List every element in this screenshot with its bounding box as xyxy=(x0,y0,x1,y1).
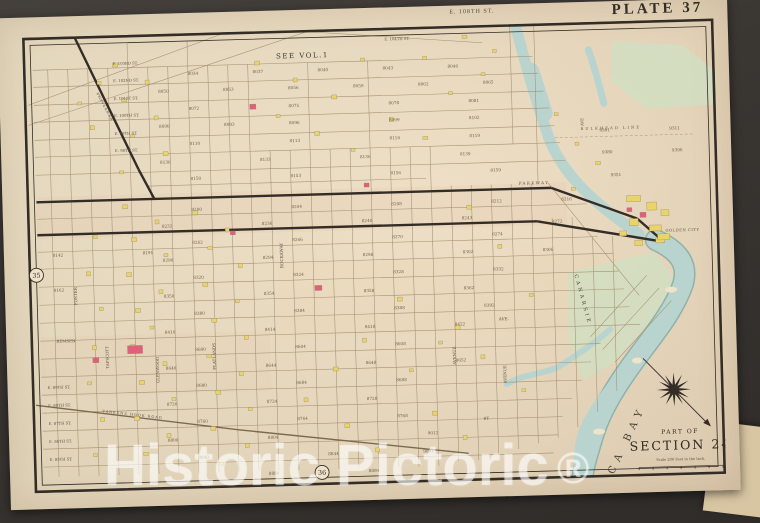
compass-rose-icon xyxy=(643,357,711,429)
street-label: E. 85TH ST. xyxy=(50,456,73,462)
building-marker xyxy=(492,49,496,52)
building-marker xyxy=(658,234,670,240)
building-marker xyxy=(635,240,643,245)
building-marker xyxy=(629,218,638,225)
building-marker xyxy=(575,142,579,145)
adjacent-plate-number: 35 xyxy=(32,271,41,279)
street-label: E. 89TH ST. xyxy=(48,384,71,390)
street-label: Scale 200 Feet to the Inch. xyxy=(656,457,705,462)
block-number: 8102 xyxy=(469,115,480,120)
block-number: 8350 xyxy=(164,293,175,298)
block-number: 8191 xyxy=(142,250,153,255)
building-marker xyxy=(90,126,94,130)
building-marker xyxy=(554,113,558,116)
building-marker xyxy=(164,254,168,257)
block-number: 8034 xyxy=(187,71,198,76)
block-number: 8232 xyxy=(162,223,173,228)
street-label: FOSTER xyxy=(73,286,79,305)
building-marker xyxy=(596,161,601,164)
building-marker xyxy=(239,372,243,376)
street-label: GLENWOOD xyxy=(155,357,161,383)
building-marker xyxy=(235,300,239,303)
street-label: SEE VOL.1 xyxy=(276,51,329,60)
block-number: 8043 xyxy=(382,65,393,70)
building-marker xyxy=(522,389,526,392)
building-marker xyxy=(230,231,235,235)
block-number: 8150 xyxy=(190,176,201,181)
street-line xyxy=(146,178,426,186)
street-line xyxy=(35,143,560,158)
building-marker xyxy=(432,411,437,415)
block-number: 8768 xyxy=(397,413,408,418)
building-marker xyxy=(640,212,646,217)
block-number: 8332 xyxy=(493,266,504,271)
block-number: 8652 xyxy=(456,357,467,362)
block-number: 8133 xyxy=(260,157,271,162)
building-marker xyxy=(163,152,168,156)
block-number: 8130 xyxy=(160,159,171,164)
building-marker xyxy=(143,452,148,455)
block-number: 8096 xyxy=(289,120,300,125)
street-label: E. 99TH ST. xyxy=(114,130,137,136)
building-marker xyxy=(463,435,467,439)
block-number: 8037 xyxy=(252,69,263,74)
block-number: 8418 xyxy=(365,324,376,329)
block-number: 8081 xyxy=(468,98,479,103)
block-number: 9311 xyxy=(669,125,680,130)
block-number: 8680 xyxy=(196,383,207,388)
block-number: 8093 xyxy=(224,122,235,127)
street-label: AVENUE xyxy=(452,346,458,366)
building-marker xyxy=(203,283,208,287)
waterway xyxy=(588,49,604,103)
block-number: 8212 xyxy=(491,198,502,203)
atlas-map: SEE VOL.1E. 104TH ST.E. 103RD ST.E. 102N… xyxy=(22,18,726,493)
building-marker xyxy=(529,293,533,296)
street-line xyxy=(26,32,309,126)
block-number: 8065 xyxy=(483,79,494,84)
street-label: B'KLYN & R.B. R.R. xyxy=(96,92,114,122)
building-marker xyxy=(216,390,221,394)
block-number: 8320 xyxy=(193,275,204,280)
block-number: 8116 xyxy=(389,135,400,140)
building-marker xyxy=(123,205,128,209)
block-number: 8354 xyxy=(264,291,275,296)
block-number: 9091 xyxy=(423,448,434,453)
block-number: 8306 xyxy=(543,247,554,252)
margin-street-label: E. 108TH ST. xyxy=(449,8,494,15)
plate-title: PLATE 37 xyxy=(563,0,703,20)
block-number: 8358 xyxy=(364,288,375,293)
building-marker xyxy=(100,417,104,421)
block-number: 8362 xyxy=(464,285,475,290)
block-number: 8764 xyxy=(297,416,308,421)
building-marker xyxy=(159,290,163,294)
block-number: 8200 xyxy=(191,207,202,212)
building-marker xyxy=(364,183,369,187)
marsh-area xyxy=(610,38,720,109)
street-line xyxy=(127,43,139,475)
block-number: 8053 xyxy=(223,87,234,92)
block-number: 8410 xyxy=(165,329,176,334)
block-number: 8688 xyxy=(396,377,407,382)
building-marker xyxy=(481,73,485,76)
building-marker xyxy=(481,355,485,359)
road-line xyxy=(238,423,469,459)
compass-needle xyxy=(643,357,706,424)
building-marker xyxy=(139,380,144,384)
building-marker xyxy=(626,195,640,201)
block-number: 8302 xyxy=(463,249,474,254)
street-label: E. 98TH ST. xyxy=(115,147,138,153)
block-number: 8884 xyxy=(369,468,380,473)
building-marker xyxy=(345,424,350,428)
block-number: 8414 xyxy=(265,327,276,332)
building-marker xyxy=(351,148,355,151)
street-label: ST. xyxy=(484,416,490,421)
block-number: 8608 xyxy=(395,341,406,346)
building-marker xyxy=(86,272,90,276)
block-number: 8604 xyxy=(295,344,306,349)
street-label: E. 88TH ST. xyxy=(48,402,71,408)
block-number: 8216 xyxy=(561,196,572,201)
street-line xyxy=(148,67,159,474)
block-number: 8648 xyxy=(366,360,377,365)
block-number: 8274 xyxy=(492,231,503,236)
street-label: E. 86TH ST. xyxy=(49,438,72,444)
building-marker xyxy=(647,202,657,210)
block-number: 8728 xyxy=(367,396,378,401)
block-number: 9390 xyxy=(672,147,683,152)
block-number: 9301 xyxy=(599,127,610,132)
street-label: FLATLANDS xyxy=(211,343,217,370)
building-marker xyxy=(362,338,366,342)
building-marker xyxy=(467,205,472,209)
block-number: 8840 xyxy=(198,455,209,460)
block-number: 8392 xyxy=(484,302,495,307)
street-label: AVENUE xyxy=(502,365,508,385)
block-number: 8040 xyxy=(317,67,328,72)
building-marker xyxy=(135,308,140,312)
building-marker xyxy=(245,443,249,447)
building-marker xyxy=(248,407,252,410)
building-marker xyxy=(78,102,82,105)
building-marker xyxy=(225,228,229,232)
building-marker xyxy=(409,369,413,372)
building-marker xyxy=(462,35,467,38)
building-marker xyxy=(154,116,158,120)
building-marker xyxy=(97,81,101,84)
building-marker xyxy=(627,208,632,212)
block-number: 8880 xyxy=(269,471,280,476)
building-marker xyxy=(571,187,575,190)
street-label: E. 104TH ST. xyxy=(384,36,409,42)
building-marker xyxy=(244,335,248,339)
block-tint xyxy=(36,182,567,239)
block-number: 8078 xyxy=(388,100,399,105)
building-marker xyxy=(127,345,142,353)
block-number: 8388 xyxy=(394,305,405,310)
block-number: 8062 xyxy=(418,81,429,86)
building-marker xyxy=(619,231,626,236)
street-line xyxy=(68,69,79,476)
block-number: 8422 xyxy=(455,321,466,326)
building-marker xyxy=(661,210,669,216)
street-label: BULKHEAD LINE xyxy=(581,124,642,131)
building-marker xyxy=(333,367,338,371)
building-marker xyxy=(238,264,242,268)
block-number: 8294 xyxy=(263,255,274,260)
building-marker xyxy=(93,236,97,239)
block-number: 9380 xyxy=(602,149,613,154)
building-marker xyxy=(93,358,99,363)
building-marker xyxy=(315,285,322,290)
block-number: 9012 xyxy=(428,430,439,435)
block-number: 8266 xyxy=(292,237,303,242)
block-number: 8328 xyxy=(393,269,404,274)
building-marker xyxy=(276,114,280,117)
block-number: 8046 xyxy=(447,63,458,68)
street-label: E. 102ND ST. xyxy=(113,77,139,83)
block-number: 9272 xyxy=(552,219,563,224)
block-number: 8324 xyxy=(293,272,304,277)
building-marker xyxy=(99,307,103,310)
block-number: 8380 xyxy=(194,311,205,316)
street-line xyxy=(48,70,59,477)
block-number: 8159 xyxy=(490,167,501,172)
building-marker xyxy=(332,95,337,99)
block-number: 8724 xyxy=(267,399,278,404)
street-line xyxy=(555,134,693,138)
street-label: ROCKAWAY xyxy=(279,242,285,268)
building-marker xyxy=(498,244,502,248)
block-number: 8059 xyxy=(353,83,364,88)
building-marker xyxy=(150,326,154,329)
street-label: SECTION 24 xyxy=(629,436,726,454)
block-number: 8153 xyxy=(290,173,301,178)
building-marker xyxy=(155,220,159,224)
building-marker xyxy=(220,462,224,465)
block-number: 8142 xyxy=(53,253,64,258)
building-marker xyxy=(92,346,96,350)
street-label: E. 103RD ST. xyxy=(113,60,138,66)
block-number: 8298 xyxy=(363,252,374,257)
block-number: 8804 xyxy=(268,435,279,440)
scan-photo: { "plate_label": "PLATE 37", "margin_lab… xyxy=(0,0,760,523)
block-number: 8075 xyxy=(288,103,299,108)
block-number: 8684 xyxy=(296,380,307,385)
block-number: 8139 xyxy=(460,151,471,156)
building-marker xyxy=(208,246,213,249)
block-number: 8290 xyxy=(163,257,174,262)
map-svg: SEE VOL.1E. 104TH ST.E. 103RD ST.E. 102N… xyxy=(22,18,726,493)
building-marker xyxy=(375,448,379,452)
building-marker xyxy=(448,92,452,95)
block-number: 8640 xyxy=(166,365,177,370)
street-label: E. 100TH ST. xyxy=(114,112,139,118)
block-number: 8600 xyxy=(195,347,206,352)
building-marker xyxy=(211,426,216,430)
street-label: GOLDEN CITY xyxy=(665,227,699,233)
block-number: 8113 xyxy=(289,138,300,143)
street-line xyxy=(208,65,219,472)
block-number: 8072 xyxy=(188,106,199,111)
block-number: 8384 xyxy=(294,308,305,313)
block-number: 8099 xyxy=(389,117,400,122)
street-label: PARKWAY xyxy=(519,180,550,186)
block-number: 8644 xyxy=(266,363,277,368)
block-number: 8136 xyxy=(360,154,371,159)
block-number: 8720 xyxy=(167,401,178,406)
block-number: 8800 xyxy=(168,437,179,442)
block-number: 8240 xyxy=(362,218,373,223)
building-marker xyxy=(438,341,442,344)
building-marker xyxy=(315,131,320,135)
building-marker xyxy=(93,454,97,457)
street-line xyxy=(510,26,513,144)
building-marker xyxy=(250,104,256,109)
building-marker xyxy=(423,136,428,139)
building-marker xyxy=(145,80,149,84)
street-label: PART OF xyxy=(661,428,699,436)
map-sheet: PLATE 37 E. 108TH ST. SEE VOL.1E. 104TH … xyxy=(0,0,741,510)
block-number: 8243 xyxy=(462,215,473,220)
street-label: E. 87TH ST. xyxy=(49,420,72,426)
street-line xyxy=(43,435,558,449)
block-number: 8050 xyxy=(158,89,169,94)
block-number: 8119 xyxy=(469,133,480,138)
block-number: 9351 xyxy=(610,172,621,177)
building-marker xyxy=(212,318,217,322)
street-line xyxy=(38,237,598,253)
block-number: 8236 xyxy=(262,221,273,226)
street-label: E. 101ST ST. xyxy=(113,95,138,101)
block-number: 8270 xyxy=(392,234,403,239)
block-number: 8056 xyxy=(288,85,299,90)
building-marker xyxy=(87,382,91,385)
block-number: 8110 xyxy=(189,141,200,146)
street-label: AVE. xyxy=(498,316,509,321)
building-marker xyxy=(649,225,661,231)
building-marker xyxy=(172,397,176,400)
building-marker xyxy=(293,78,297,82)
building-marker xyxy=(255,61,260,65)
street-label: TAPSCOTT xyxy=(104,346,110,369)
block-number: 8162 xyxy=(53,288,64,293)
adjacent-plate-number: 36 xyxy=(318,469,327,477)
block-number: 8844 xyxy=(328,451,339,456)
building-marker xyxy=(397,297,402,301)
block-number: 8208 xyxy=(391,201,402,206)
block-number: 8090 xyxy=(159,124,170,129)
block-number: 8262 xyxy=(192,240,203,245)
street-label: REMSEN xyxy=(56,338,76,344)
building-marker xyxy=(131,237,136,241)
block-number: 8156 xyxy=(390,170,401,175)
building-marker xyxy=(423,56,427,59)
building-marker xyxy=(361,58,365,61)
building-marker xyxy=(120,171,124,174)
building-marker xyxy=(126,273,131,277)
building-marker xyxy=(304,398,308,402)
block-number: 8204 xyxy=(291,204,302,209)
block-number: 8760 xyxy=(197,419,208,424)
